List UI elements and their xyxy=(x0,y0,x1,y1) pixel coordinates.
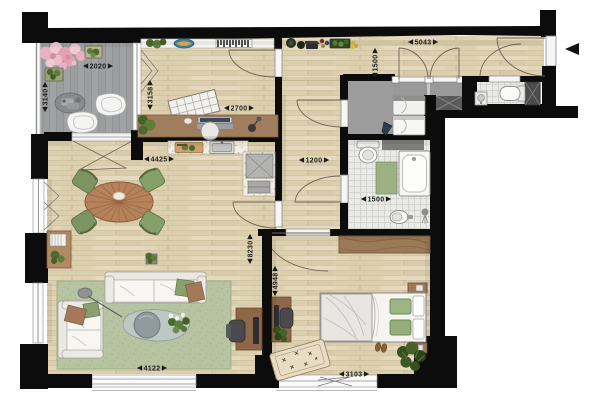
svg-text:3103: 3103 xyxy=(346,372,363,379)
svg-text:4122: 4122 xyxy=(144,366,161,373)
svg-text:3140: 3140 xyxy=(43,89,50,106)
svg-text:4425: 4425 xyxy=(151,157,168,164)
svg-text:4948: 4948 xyxy=(273,273,280,290)
svg-text:2020: 2020 xyxy=(90,64,107,71)
svg-text:1500: 1500 xyxy=(368,197,385,204)
svg-text:1200: 1200 xyxy=(306,158,323,165)
svg-text:2700: 2700 xyxy=(231,106,248,113)
svg-text:5043: 5043 xyxy=(415,40,432,47)
svg-text:8230: 8230 xyxy=(248,241,255,258)
svg-text:1500: 1500 xyxy=(373,55,380,72)
svg-text:3158: 3158 xyxy=(148,87,155,104)
